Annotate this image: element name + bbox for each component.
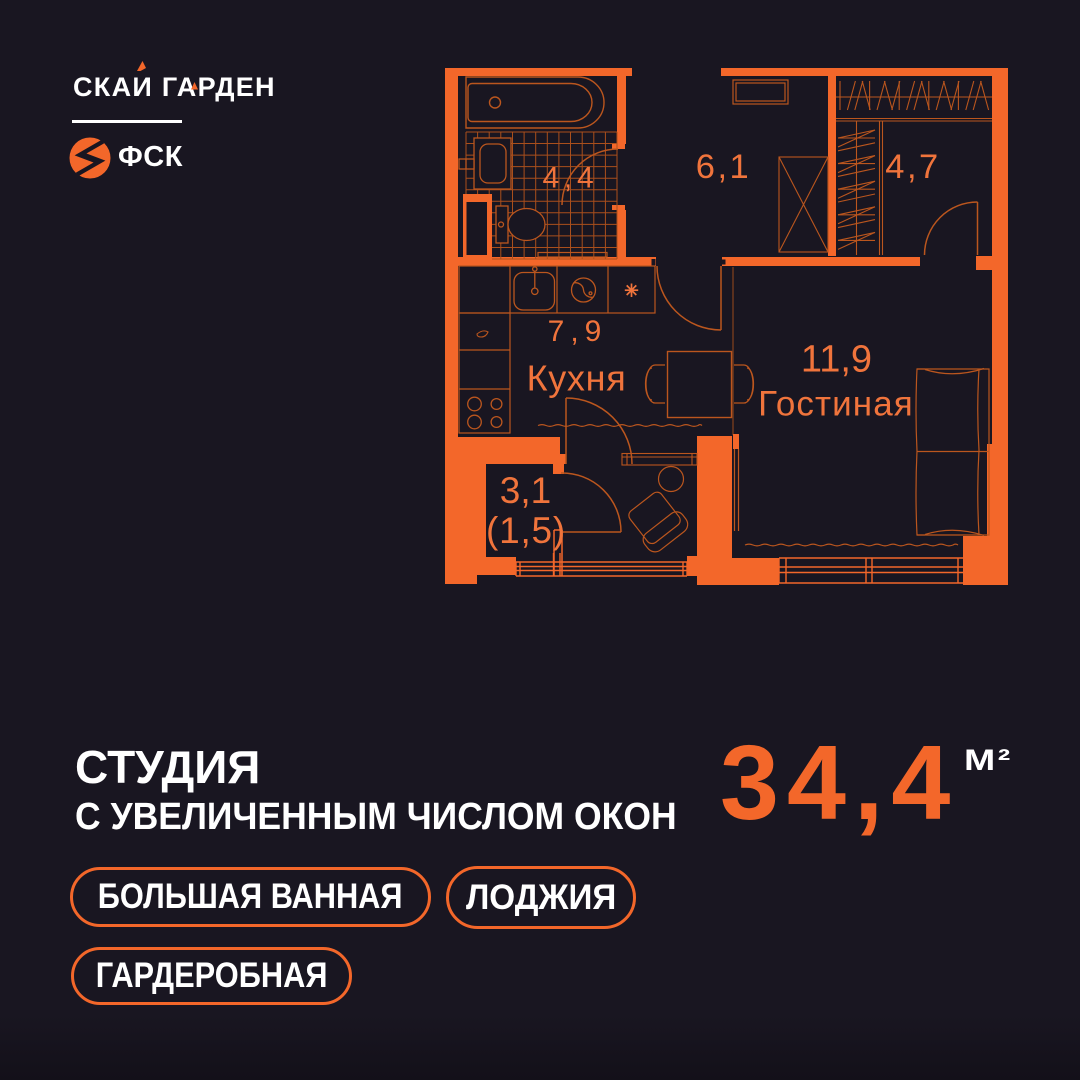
svg-text:3,1: 3,1 <box>500 470 551 511</box>
svg-text:6,1: 6,1 <box>696 148 751 186</box>
svg-text:7,9: 7,9 <box>548 315 608 348</box>
svg-text:(1,5): (1,5) <box>486 510 566 551</box>
svg-text:11,9: 11,9 <box>801 339 872 381</box>
svg-text:4,7: 4,7 <box>885 148 940 186</box>
svg-text:Гостиная: Гостиная <box>758 385 914 424</box>
svg-text:4,4: 4,4 <box>542 162 598 195</box>
svg-text:Кухня: Кухня <box>527 358 627 399</box>
